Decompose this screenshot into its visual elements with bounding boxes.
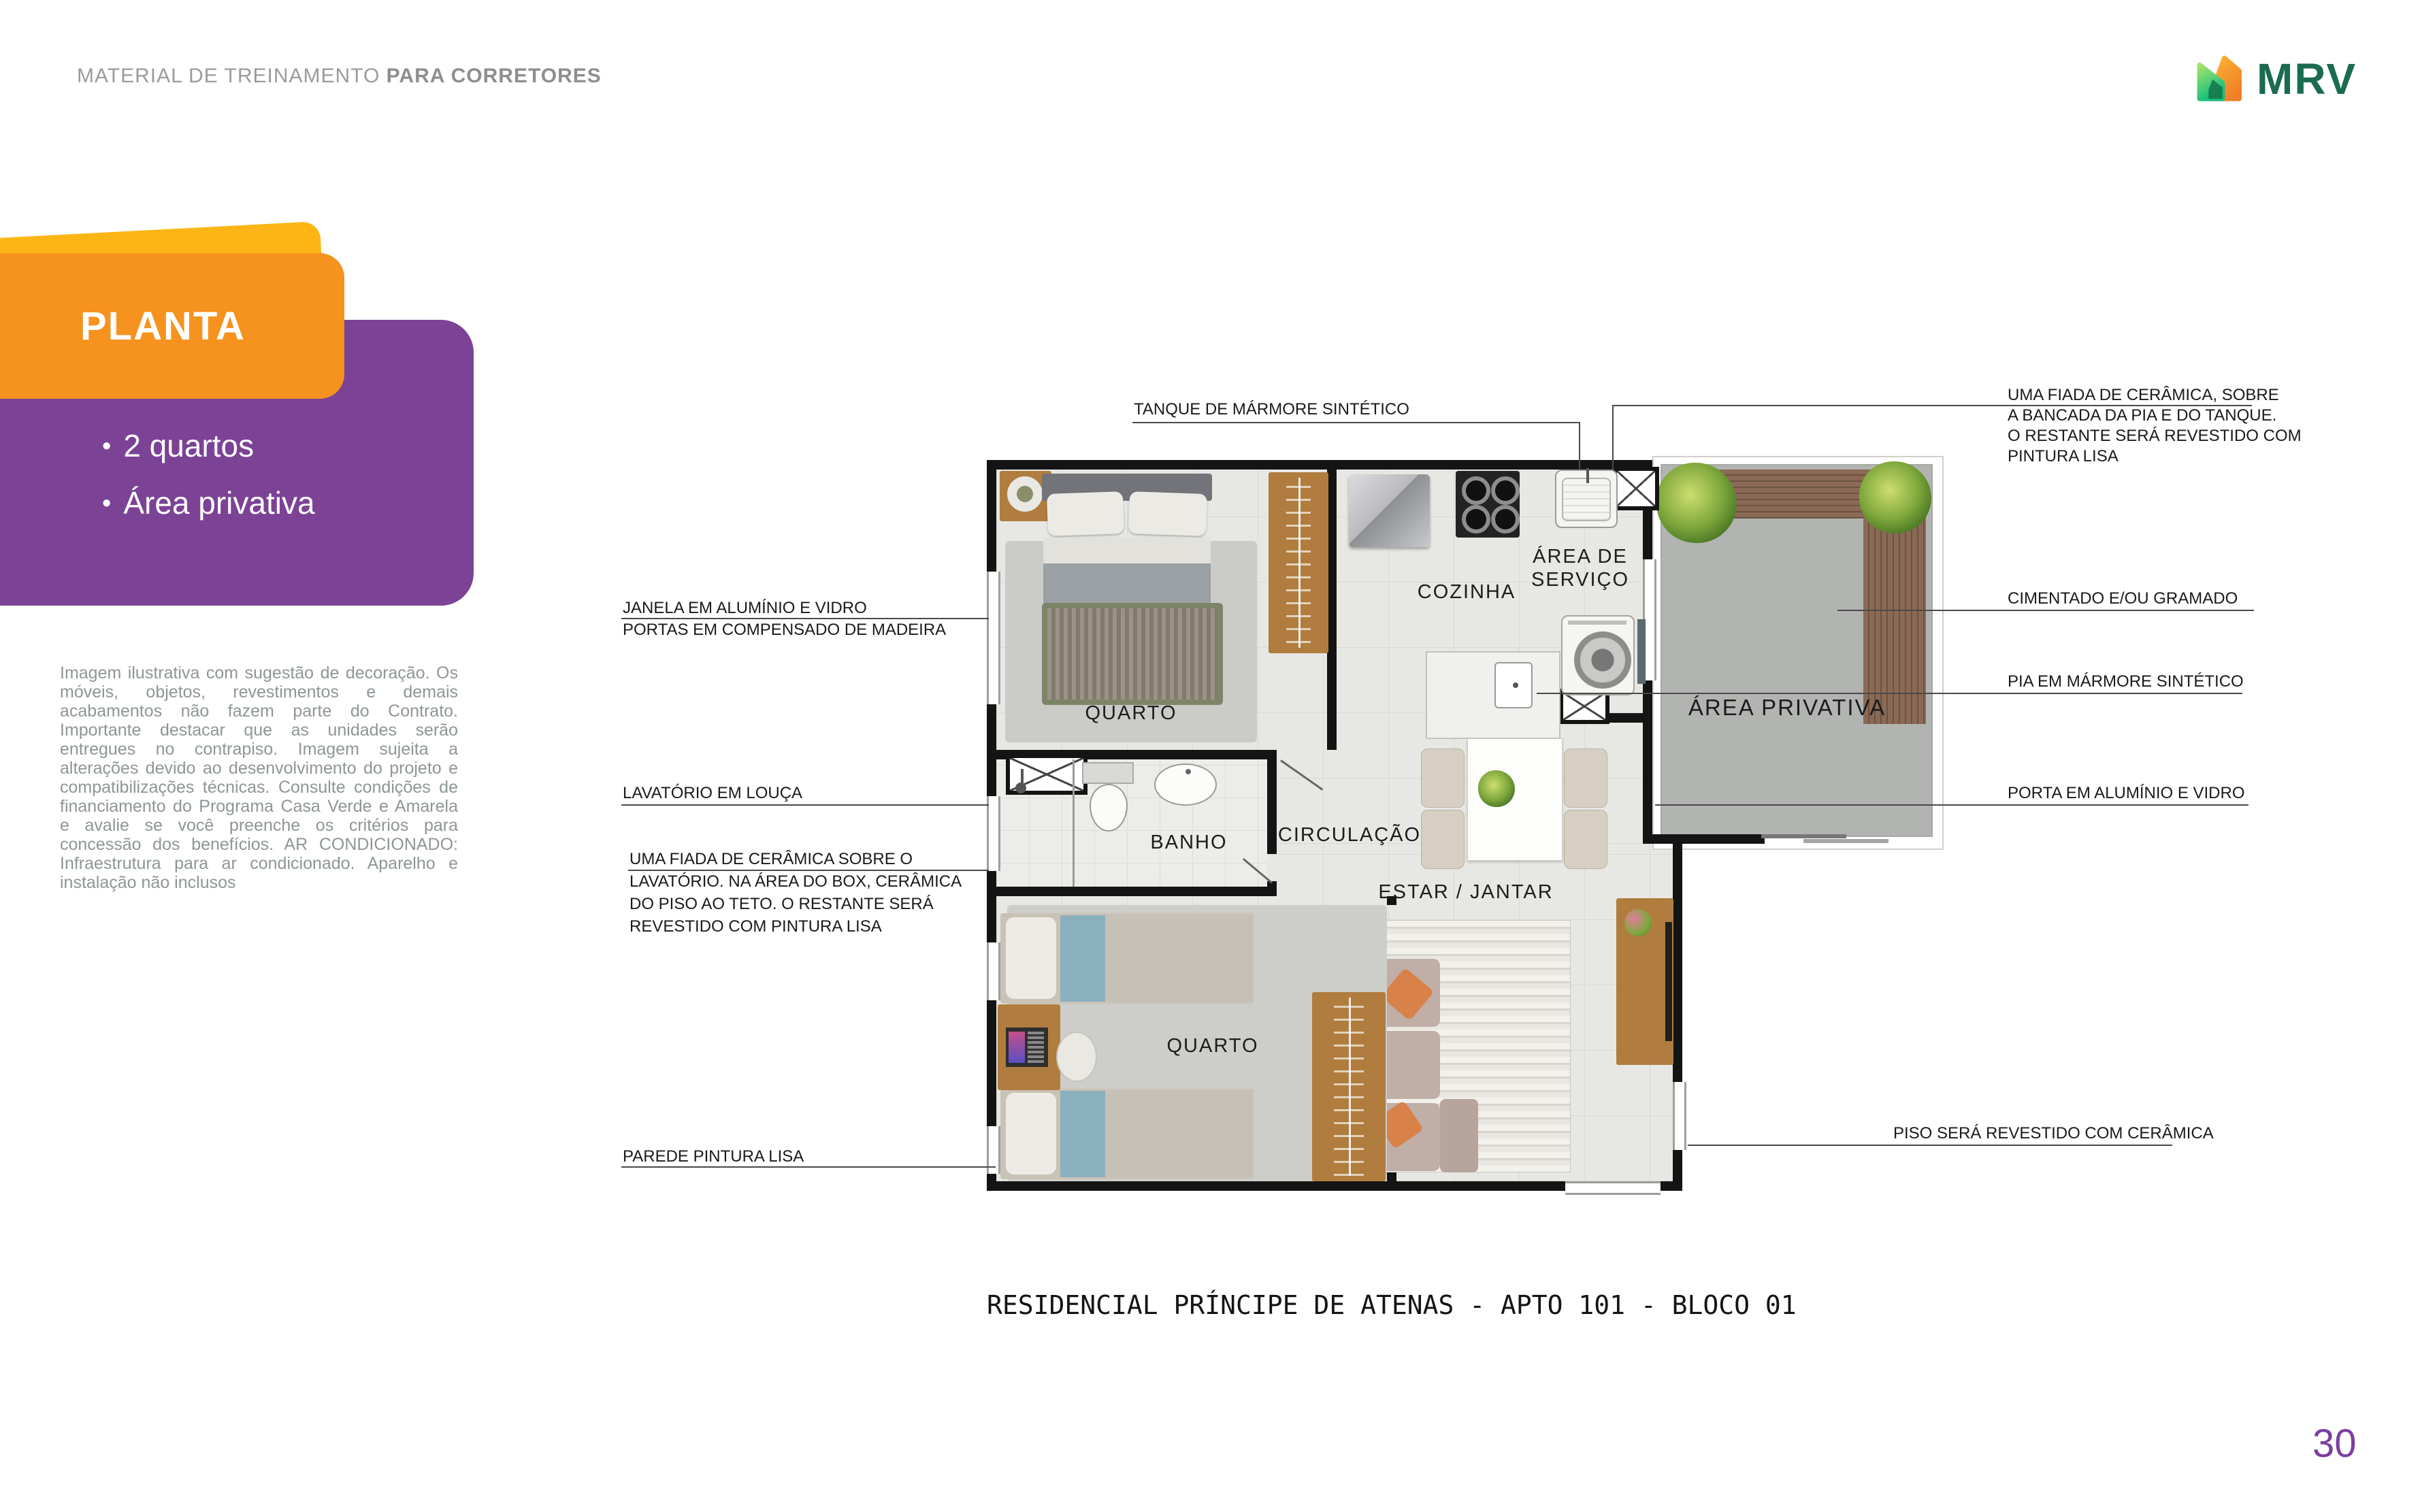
tv-stand bbox=[1616, 898, 1673, 1065]
annotation-pia: PIA EM MÁRMORE SINTÉTICO bbox=[2008, 671, 2244, 693]
leader-line bbox=[1612, 405, 2252, 406]
patio-sliding-door bbox=[1803, 839, 1888, 843]
annotation-parede: PAREDE PINTURA LISA bbox=[623, 1146, 804, 1168]
header-title-regular: MATERIAL DE TREINAMENTO bbox=[77, 65, 387, 87]
window-bottom bbox=[1565, 1181, 1661, 1195]
header-title-bold: PARA CORRETORES bbox=[387, 65, 602, 87]
pillow bbox=[1128, 491, 1207, 536]
shower-area bbox=[996, 759, 1075, 887]
annotation-lavatorio: LAVATÓRIO EM LOUÇA bbox=[623, 783, 802, 804]
bullet-dot: • bbox=[102, 489, 111, 518]
bath-sink-icon bbox=[1154, 763, 1217, 806]
window-living bbox=[1673, 1082, 1686, 1150]
annotation-janela-portas: JANELA EM ALUMÍNIO E VIDRO PORTAS EM COM… bbox=[623, 597, 946, 641]
room-label-bedroom2: QUARTO bbox=[1166, 1034, 1258, 1057]
desk bbox=[998, 1004, 1060, 1090]
leader-line bbox=[628, 870, 989, 871]
leader-line bbox=[1655, 804, 2249, 806]
annotation-fiada-left: UMA FIADA DE CERÂMICA SOBRE O LAVATÓRIO.… bbox=[629, 848, 962, 938]
dining-chair bbox=[1421, 749, 1465, 808]
leader-line bbox=[1537, 693, 2242, 694]
fridge-icon bbox=[1349, 474, 1430, 547]
toilet-icon bbox=[1082, 762, 1134, 784]
wardrobe bbox=[1269, 472, 1328, 653]
shaft-box-icon bbox=[1613, 467, 1659, 510]
slide: MATERIAL DE TREINAMENTO PARA CORRETORES … bbox=[0, 0, 2420, 1512]
dining-chair bbox=[1564, 810, 1607, 869]
room-label-bathroom: BANHO bbox=[1150, 831, 1227, 854]
single-bed bbox=[1000, 913, 1254, 1004]
room-label-private-area: ÁREA PRIVATIVA bbox=[1688, 696, 1886, 719]
disclaimer-text: Imagem ilustrativa com sugestão de decor… bbox=[60, 663, 458, 892]
quilt bbox=[1042, 603, 1223, 705]
bullet-item-quartos: •2 quartos bbox=[102, 427, 254, 464]
annotation-fiada-right: UMA FIADA DE CERÂMICA, SOBRE A BANCADA D… bbox=[2008, 385, 2302, 467]
double-bed bbox=[1042, 474, 1212, 694]
tv-icon bbox=[1665, 922, 1672, 1041]
planta-tab: PLANTA bbox=[0, 253, 344, 399]
wall-bedroom1-kitchen bbox=[1327, 460, 1337, 750]
pillow bbox=[1047, 491, 1124, 536]
wall-bath-bottom bbox=[987, 887, 1277, 896]
leader-line bbox=[621, 1166, 996, 1168]
plant-icon bbox=[1859, 461, 1931, 533]
patio-sliding-door bbox=[1761, 834, 1846, 838]
room-label-service: ÁREA DE SERVIÇO bbox=[1531, 545, 1629, 591]
laundry-tank-icon bbox=[1555, 470, 1618, 528]
single-bed bbox=[1000, 1089, 1254, 1179]
bullet-label: 2 quartos bbox=[123, 428, 254, 463]
washing-machine-icon bbox=[1561, 615, 1635, 695]
lamp-icon bbox=[1007, 476, 1043, 512]
annotation-tanque: TANQUE DE MÁRMORE SINTÉTICO bbox=[1134, 399, 1409, 421]
wall-bath-right-a bbox=[1267, 759, 1277, 854]
mrv-logo-icon bbox=[2193, 50, 2247, 107]
leader-line bbox=[1132, 422, 1580, 423]
plan-caption: RESIDENCIAL PRÍNCIPE DE ATENAS - APTO 10… bbox=[987, 1290, 1797, 1320]
stove-icon bbox=[1456, 471, 1520, 538]
room-label-bedroom1: QUARTO bbox=[1085, 702, 1177, 725]
planta-tab-label: PLANTA bbox=[80, 303, 246, 349]
wall-top bbox=[987, 460, 1652, 470]
mrv-logo: MRV bbox=[2193, 50, 2357, 107]
window-bedroom1 bbox=[987, 572, 1000, 704]
pillow bbox=[1006, 1093, 1056, 1174]
plant-icon bbox=[1656, 463, 1737, 543]
window-bedroom2-a bbox=[987, 942, 1000, 1000]
room-label-living: ESTAR / JANTAR bbox=[1378, 881, 1553, 904]
wardrobe bbox=[1312, 992, 1386, 1181]
glass-door-leaf bbox=[1637, 619, 1646, 684]
header-title: MATERIAL DE TREINAMENTO PARA CORRETORES bbox=[77, 65, 602, 88]
leader-line bbox=[621, 618, 989, 619]
annotation-porta: PORTA EM ALUMÍNIO E VIDRO bbox=[2008, 783, 2245, 804]
leader-line bbox=[1579, 422, 1580, 470]
room-label-hallway: CIRCULAÇÃO bbox=[1278, 823, 1421, 847]
dining-chair bbox=[1421, 810, 1465, 869]
kitchen-counter bbox=[1426, 651, 1560, 739]
bullet-dot: • bbox=[102, 432, 111, 461]
table-plant-icon bbox=[1478, 770, 1515, 807]
flowers-icon bbox=[1624, 909, 1652, 936]
leader-line bbox=[1837, 610, 2254, 611]
pillow bbox=[1006, 917, 1056, 999]
annotation-cimentado: CIMENTADO E/OU GRAMADO bbox=[2008, 588, 2238, 610]
desk-chair bbox=[1056, 1032, 1097, 1082]
dining-chair bbox=[1564, 749, 1607, 808]
bullet-item-area-privativa: •Área privativa bbox=[102, 484, 315, 521]
leader-line bbox=[1612, 405, 1614, 470]
floor-plan: QUARTO COZINHA ÁREA DE SERVIÇO ÁREA PRIV… bbox=[987, 456, 1946, 1194]
laptop-icon bbox=[1006, 1028, 1048, 1067]
leader-line bbox=[621, 804, 989, 806]
page-number: 30 bbox=[2312, 1421, 2357, 1466]
bullet-label: Área privativa bbox=[123, 485, 314, 521]
mrv-logo-wordmark: MRV bbox=[2257, 52, 2357, 105]
room-label-kitchen: COZINHA bbox=[1418, 580, 1516, 604]
leader-line bbox=[1688, 1145, 2172, 1146]
annotation-piso: PISO SERÁ REVESTIDO COM CERÂMICA bbox=[1893, 1123, 2214, 1145]
